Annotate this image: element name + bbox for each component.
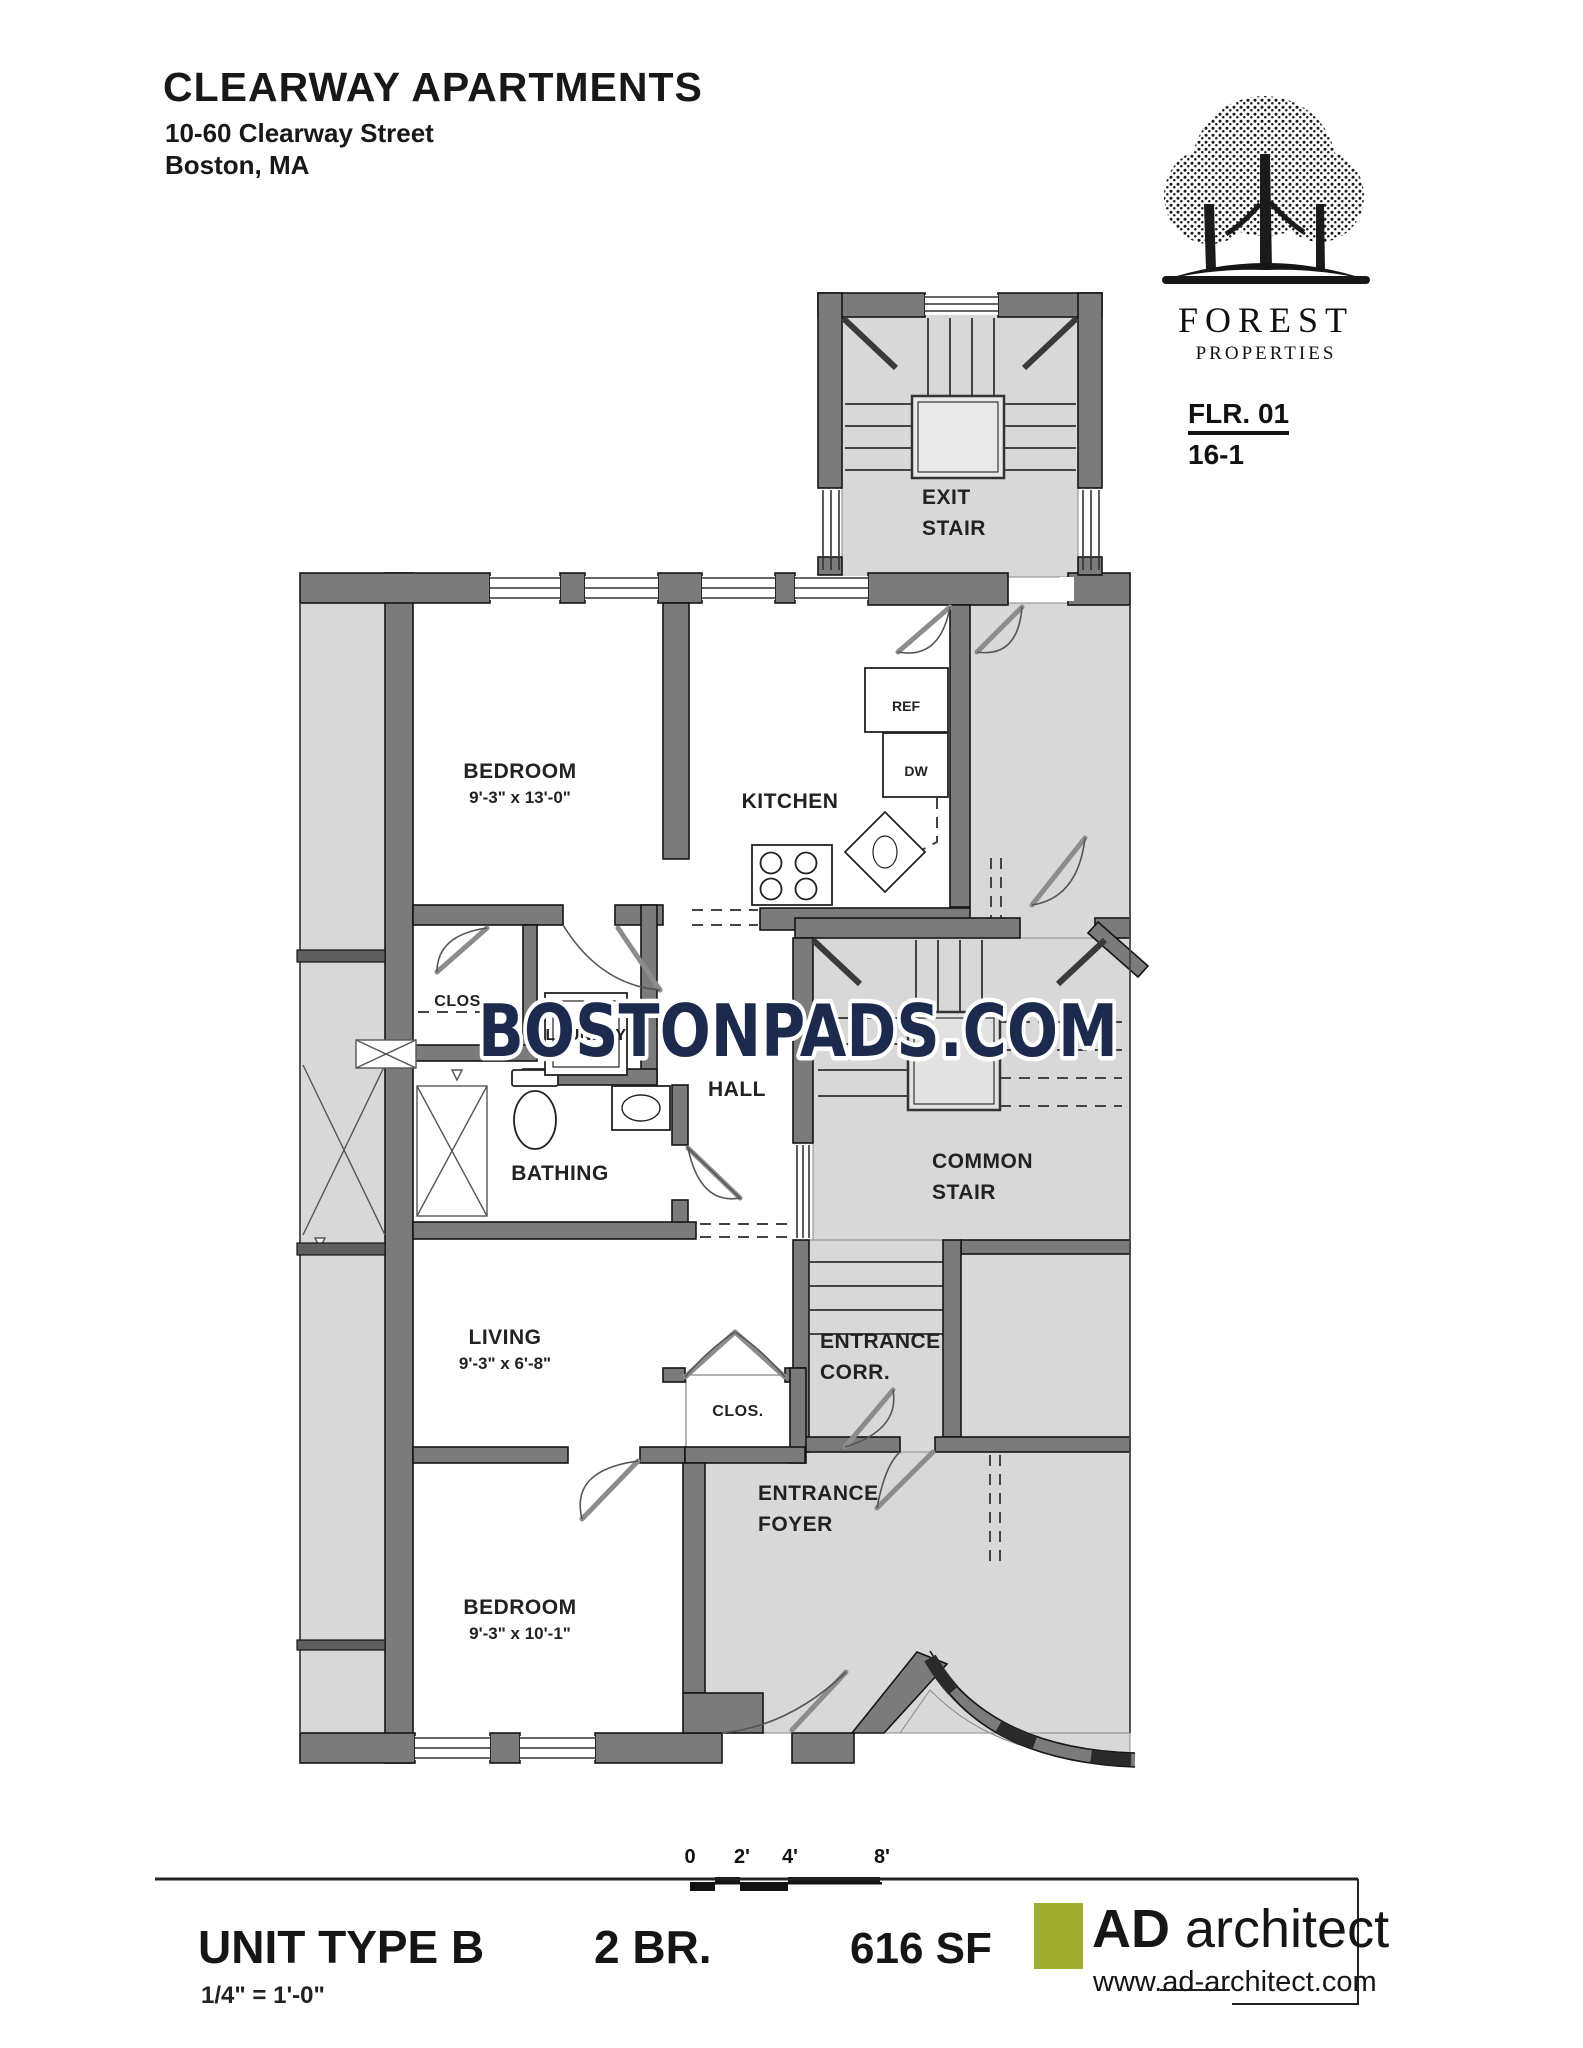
- architect-brand-bold: AD: [1092, 1899, 1170, 1959]
- forest-properties-logo: FOREST PROPERTIES: [1148, 84, 1384, 365]
- scale-tick-4: 4': [782, 1846, 798, 1869]
- room-dims-living: 9'-3" x 6'-8": [459, 1354, 551, 1374]
- room-label-closet-top: CLOS.: [434, 986, 485, 1017]
- unit-type-label: UNIT TYPE B: [198, 1920, 484, 1974]
- logo-company-name: FOREST: [1148, 299, 1384, 341]
- bedroom-count: 2 BR.: [594, 1920, 712, 1974]
- room-label-living: LIVING: [468, 1322, 541, 1353]
- floor-label: FLR. 01: [1188, 398, 1289, 435]
- unit-area: 616 SF: [850, 1924, 992, 1974]
- toilet-bowl: [514, 1091, 556, 1149]
- trees-icon: [1148, 84, 1384, 292]
- room-label-hall: HALL: [708, 1074, 766, 1105]
- architect-url: www.ad-architect.com: [1093, 1966, 1377, 1999]
- scale-tick-2: 2': [734, 1846, 750, 1869]
- room-label-exit-stair: EXITSTAIR: [922, 482, 986, 544]
- bath-sink: [612, 1086, 670, 1130]
- room-label-laundry: LAUNDRY: [545, 1020, 626, 1051]
- scale-tick-8: 8': [874, 1846, 890, 1869]
- room-label-entrance-corr: ENTRANCECORR.: [820, 1326, 941, 1388]
- fixture-label-ref: REF: [892, 691, 920, 722]
- room-label-bedroom-bottom: BEDROOM: [463, 1592, 576, 1623]
- room-label-bathing: BATHING: [511, 1158, 609, 1189]
- architect-logo-square: [1034, 1903, 1083, 1969]
- room-dims-bedroom-bottom: 9'-3" x 10'-1": [469, 1624, 571, 1644]
- fixture-label-dw: DW: [904, 756, 927, 787]
- logo-company-subtitle: PROPERTIES: [1148, 343, 1384, 365]
- architect-brand: AD architect: [1092, 1898, 1389, 1960]
- common-area-shading: [300, 313, 1130, 1760]
- address-line2: Boston, MA: [165, 150, 309, 181]
- kitchen-sink: [845, 812, 925, 892]
- floorplan-page: CLEARWAY APARTMENTS 10-60 Clearway Stree…: [0, 0, 1583, 2048]
- room-label-bedroom-top: BEDROOM: [463, 756, 576, 787]
- room-label-entrance-foyer: ENTRANCEFOYER: [758, 1478, 879, 1540]
- scale-note: 1/4" = 1'-0": [201, 1982, 325, 2010]
- room-label-common-stair: COMMONSTAIR: [932, 1146, 1033, 1208]
- sheet-number: 16-1: [1188, 439, 1289, 471]
- scale-tick-0: 0: [684, 1846, 695, 1869]
- room-label-kitchen: KITCHEN: [742, 786, 839, 817]
- address-line1: 10-60 Clearway Street: [165, 118, 434, 149]
- room-label-closet-living: CLOS.: [712, 1396, 763, 1427]
- room-dims-bedroom-top: 9'-3" x 13'-0": [469, 788, 571, 808]
- floor-reference: FLR. 01 16-1: [1188, 398, 1289, 471]
- architect-brand-light: architect: [1170, 1899, 1389, 1959]
- page-title: CLEARWAY APARTMENTS: [163, 64, 703, 111]
